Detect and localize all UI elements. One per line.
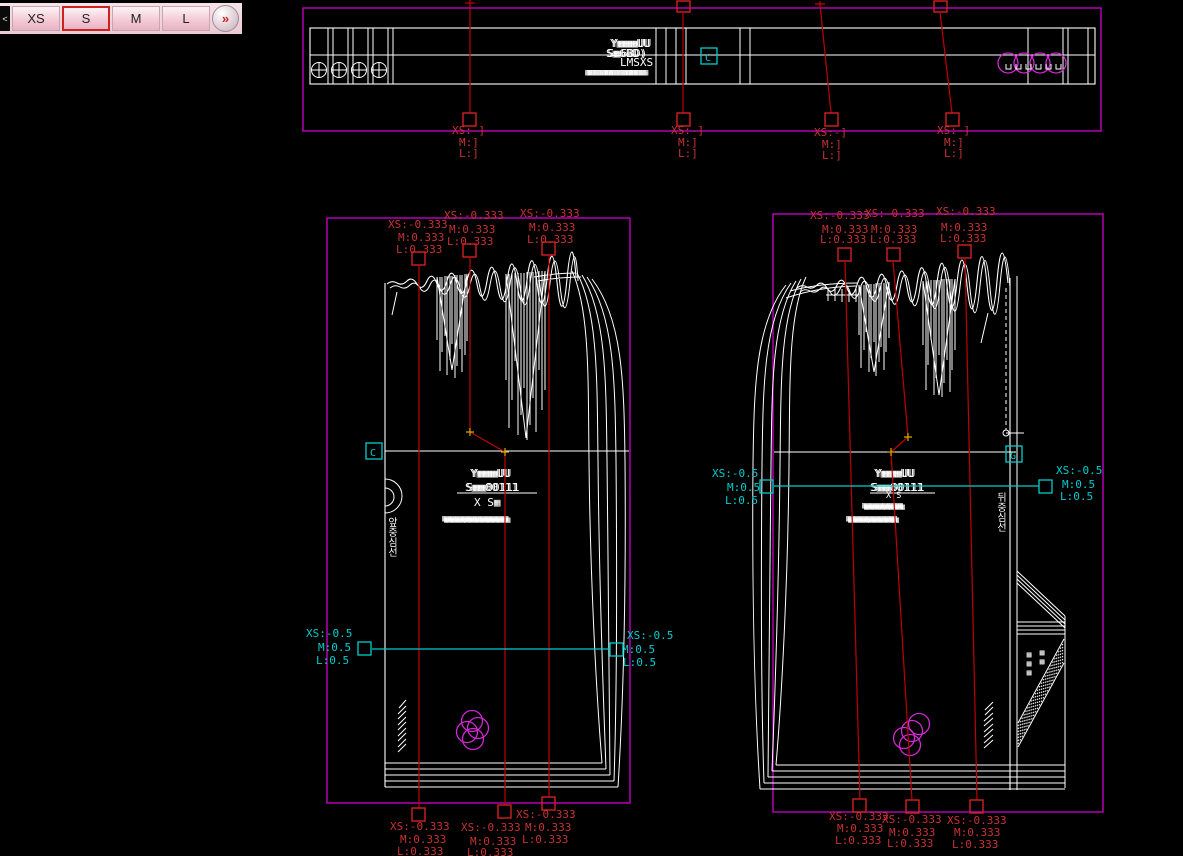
front-bot1-l: L:0.333 [397, 845, 443, 856]
band-grade4-l: L:] [944, 147, 964, 160]
front-dart-cluster-2 [506, 271, 545, 440]
vent-label-1: ▦▦▦ [1025, 650, 1034, 677]
waistband-dividers-right [1028, 28, 1088, 84]
tabs-more-button[interactable]: » [212, 5, 239, 32]
waistband-dividers-middle [656, 28, 750, 84]
front-left-l: L:0.5 [316, 654, 349, 667]
band-grade-line-4 [940, 12, 952, 113]
back-label-5b: ▦▦▦▦▦▦▦▦▦▦ [848, 516, 899, 526]
front-bot1-xs: XS:-0.333 [390, 820, 450, 833]
band-grade-line-3 [815, 1, 831, 113]
waistband-piece: C Y▦▦▦UU Y▦▦▦UU S▦6BD) S▦6BD) LMSXS ▦▦▦▦… [303, 8, 1101, 131]
front-bottom-handle-2[interactable] [498, 805, 511, 818]
band-grade2-l: L:] [678, 147, 698, 160]
vent-label-2: ▦▦ [1038, 648, 1047, 666]
front-top2-l: L:0.333 [447, 235, 493, 248]
tab-size-l[interactable]: L [162, 6, 210, 31]
band-grade-handle-3[interactable] [825, 113, 838, 126]
band-label-line4-overlap: ▦▦▦▦▦▦▦▦▦▦▦▦ [587, 68, 648, 78]
tabs-scroll-left-button[interactable]: < [0, 6, 10, 31]
back-bounding-box [773, 214, 1103, 812]
back-grade-line-2 [891, 261, 912, 800]
band-grade-lines: XS:-] M:] L:] XS:-] M:] L:] XS:-] M:] L:… [452, 0, 970, 162]
vent-top-diagonals [1017, 571, 1065, 628]
back-cb-label: 뒤중심선 [995, 492, 1007, 532]
front-label-4b: ▦▦▦▦▦▦▦▦▦▦▦▦▦ [444, 516, 511, 526]
front-grade-rings [457, 711, 489, 750]
back-top-handle-2[interactable] [887, 248, 900, 261]
front-right-m: M:0.5 [622, 643, 655, 656]
band-marker-glyph: C [705, 53, 711, 64]
back-marker-glyph: G [1010, 451, 1016, 462]
front-measure-line: XS:-0.5 M:0.5 L:0.5 XS:-0.5 M:0.5 L:0.5 [306, 627, 673, 669]
back-top1-xs: XS:-0.333 [810, 209, 870, 222]
button-marks [312, 63, 387, 78]
front-side-seam-graded [572, 271, 625, 787]
back-left-l: L:0.5 [725, 494, 758, 507]
waistband-outline [310, 28, 1095, 84]
back-grade-line-3 [965, 258, 977, 800]
back-bot2-l: L:0.333 [887, 837, 933, 850]
front-hatch-marks [398, 700, 406, 752]
front-dart-cluster-1 [437, 274, 467, 378]
back-vent: ▦▦▦ ▦▦ [1017, 571, 1065, 790]
front-hem-graded [385, 763, 618, 787]
back-grade-lines: XS:-0.333 M:0.333 L:0.333 XS:-0.333 M:0.… [810, 205, 1007, 851]
back-label-1b: Y▦▦▦UU [876, 467, 916, 480]
back-top3-l: L:0.333 [940, 232, 986, 245]
front-right-xs: XS:-0.5 [627, 629, 673, 642]
size-tab-bar: < XS S M L » [0, 3, 242, 34]
front-bot2-xs: XS:-0.333 [461, 821, 521, 834]
back-side-seam-graded [753, 277, 806, 789]
front-marker-glyph: C [370, 448, 376, 459]
front-label-2b: S▦▦00111 [467, 481, 520, 494]
back-bot1-l: L:0.333 [835, 834, 881, 847]
front-cyan-handle-left[interactable] [358, 642, 371, 655]
back-top-handle-3[interactable] [958, 245, 971, 258]
back-right-xs: XS:-0.5 [1056, 464, 1102, 477]
back-waist-notches [826, 288, 858, 302]
front-top3-l: L:0.333 [527, 233, 573, 246]
front-fold-label: 앞중심선 [386, 517, 398, 557]
front-label-3: X S▦ [474, 496, 501, 509]
front-bot2-l: L:0.333 [467, 846, 513, 856]
back-left-m: M:0.5 [727, 481, 760, 494]
front-top1-xs: XS:-0.333 [388, 218, 448, 231]
back-waistline [797, 253, 1008, 310]
front-left-xs: XS:-0.5 [306, 627, 352, 640]
back-hatch-marks [984, 702, 993, 748]
back-top3-xs: XS:-0.333 [936, 205, 996, 218]
tab-size-s[interactable]: S [62, 6, 110, 31]
back-notch-tick [981, 313, 988, 343]
front-top1-l: L:0.333 [396, 243, 442, 256]
back-top2-l: L:0.333 [870, 233, 916, 246]
front-top3-xs: XS:-0.333 [520, 207, 580, 220]
back-bot3-l: L:0.333 [952, 838, 998, 851]
front-bounding-box [327, 218, 630, 803]
front-right-l: L:0.5 [623, 656, 656, 669]
back-left-xs: XS:-0.5 [712, 467, 758, 480]
back-top1-l: L:0.333 [820, 233, 866, 246]
back-cyan-handle-right[interactable] [1039, 480, 1052, 493]
back-top-handle-1[interactable] [838, 248, 851, 261]
band-grade1-l: L:] [459, 147, 479, 160]
back-dart-cluster-2 [923, 279, 955, 397]
band-grade-top-handle-2[interactable] [677, 1, 690, 12]
back-bottom-handle-3[interactable] [970, 800, 983, 813]
back-dart-cluster-1 [859, 282, 889, 376]
front-bot3-xs: XS:-0.333 [516, 808, 576, 821]
back-hem-graded [760, 765, 1065, 789]
back-grade-line-1 [845, 261, 860, 799]
front-bot3-l: L:0.333 [522, 833, 568, 846]
tab-size-m[interactable]: M [112, 6, 160, 31]
vent-fold-lines [1017, 622, 1065, 634]
buttonhole-grade-rings [998, 53, 1066, 73]
front-grade-lines: XS:-0.333 M:0.333 L:0.333 XS:-0.333 M:0.… [388, 207, 580, 856]
waistband-bounding-box [303, 8, 1101, 131]
back-grade-rings [894, 714, 930, 756]
band-grade-line-1 [465, 0, 475, 113]
back-label-4b: ▦▦▦▦▦▦▦▦ [864, 503, 905, 513]
front-skirt-panel: 앞중심선 C Y▦▦▦UU Y▦▦▦UU S▦▦00111 S▦▦00111 X… [327, 218, 630, 803]
tab-size-xs[interactable]: XS [12, 6, 60, 31]
front-left-m: M:0.5 [318, 641, 351, 654]
back-skirt-panel: ▦▦▦ ▦▦ 뒤중심선 G Y▦▦▦UU Y▦▦▦UU S▦▦00111 S▦▦… [753, 214, 1103, 812]
band-grade3-l: L:] [822, 149, 842, 162]
band-grade-top-handle-4[interactable] [934, 1, 947, 12]
front-notch-tick [392, 292, 397, 315]
back-top2-xs: XS:-0.333 [865, 207, 925, 220]
back-right-l: L:0.5 [1060, 490, 1093, 503]
cad-canvas[interactable]: C Y▦▦▦UU Y▦▦▦UU S▦6BD) S▦6BD) LMSXS ▦▦▦▦… [0, 0, 1183, 856]
front-top2-xs: XS:-0.333 [444, 209, 504, 222]
back-bot2-xs: XS:-0.333 [882, 813, 942, 826]
back-bottom-handle-2[interactable] [906, 800, 919, 813]
front-fold-arcs [385, 479, 402, 513]
